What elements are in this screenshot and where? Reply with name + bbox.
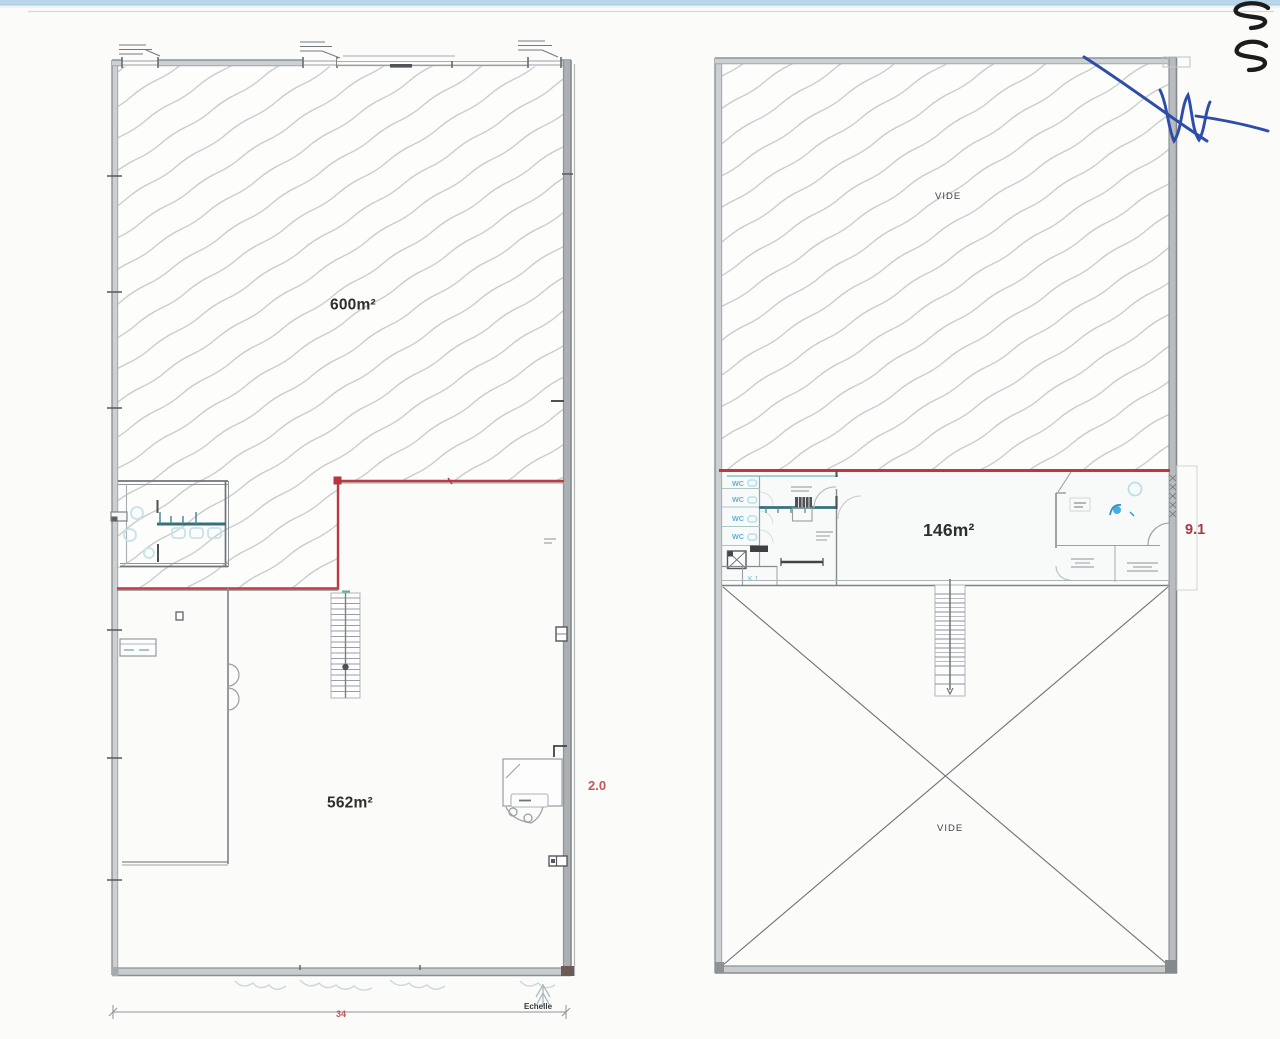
svg-text:WC: WC	[732, 514, 744, 523]
svg-text:WC: WC	[732, 479, 744, 488]
svg-text:9.1: 9.1	[1185, 522, 1205, 538]
svg-text:Echelle: Echelle	[524, 1002, 553, 1011]
svg-text:VIDE: VIDE	[935, 191, 961, 202]
svg-text:WC: WC	[732, 532, 744, 541]
svg-text:2.0: 2.0	[588, 778, 606, 793]
svg-text:562m²: 562m²	[327, 795, 373, 812]
svg-text:WC: WC	[732, 495, 744, 504]
svg-text:VIDE: VIDE	[937, 823, 963, 834]
svg-text:K.1: K.1	[748, 576, 759, 583]
svg-text:34: 34	[336, 1009, 346, 1019]
svg-text:146m²: 146m²	[923, 520, 975, 540]
svg-text:600m²: 600m²	[330, 297, 376, 314]
